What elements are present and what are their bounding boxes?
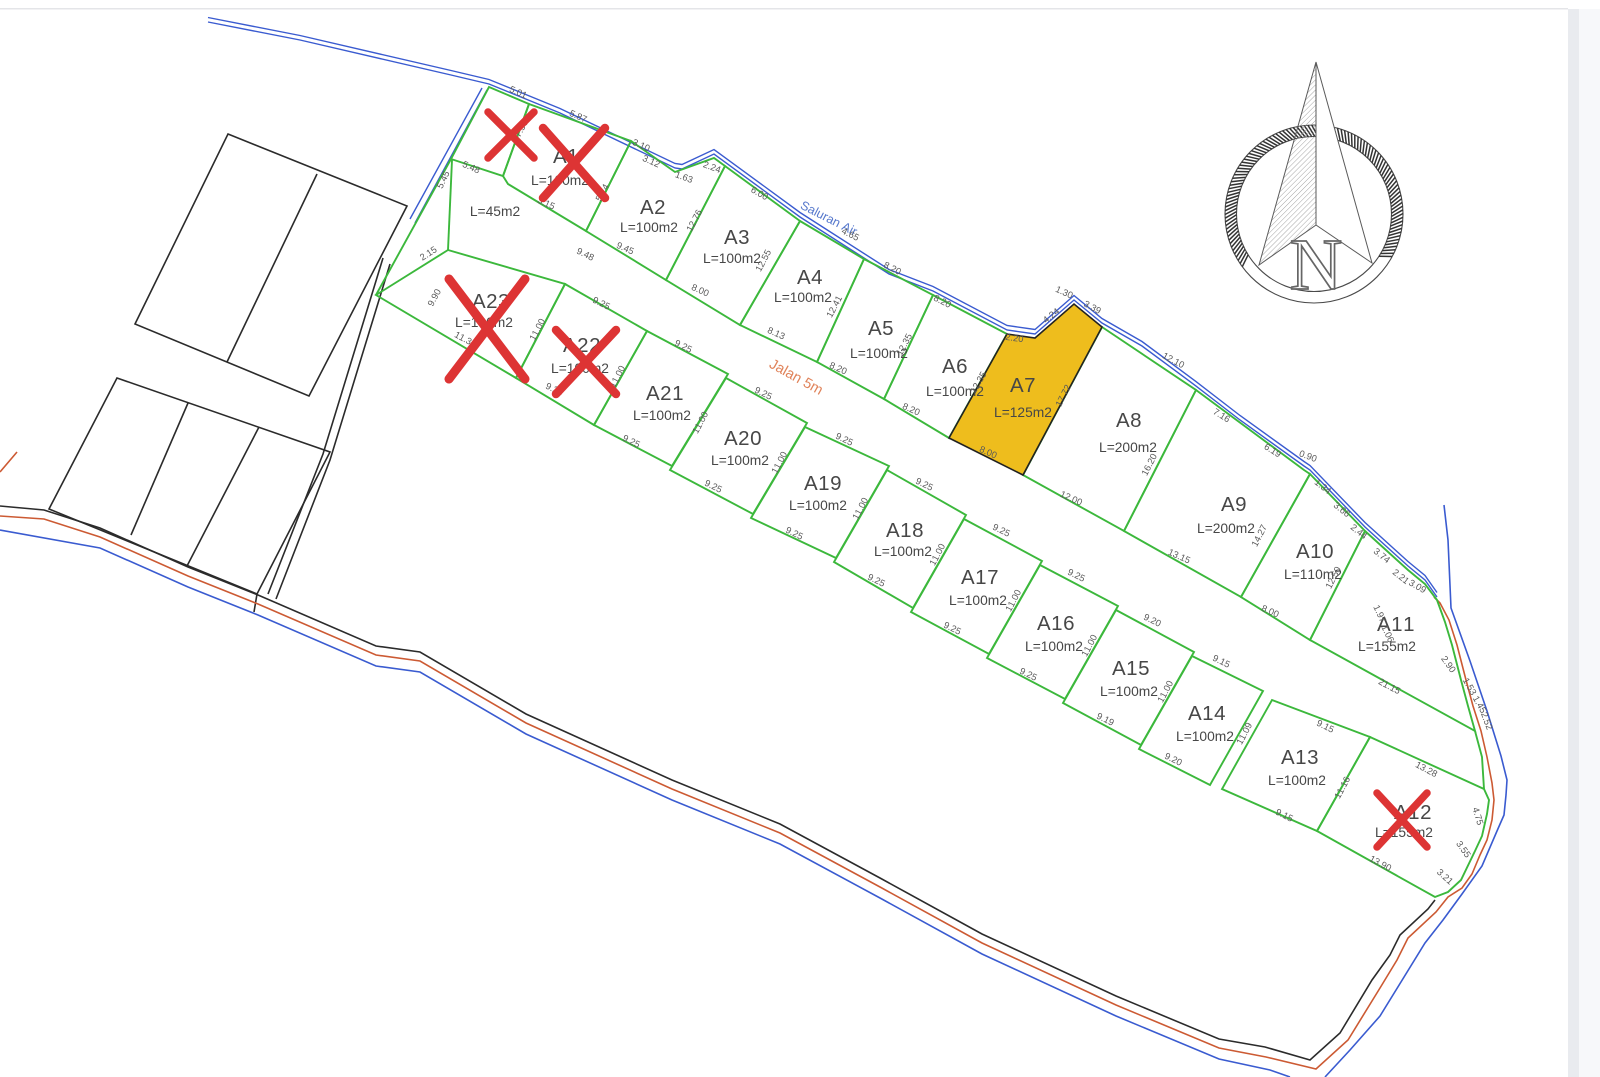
svg-text:A13: A13	[1281, 746, 1319, 769]
svg-text:A8: A8	[1116, 409, 1142, 432]
svg-text:L=100m2: L=100m2	[633, 408, 691, 423]
svg-text:A14: A14	[1188, 702, 1226, 725]
svg-text:L=100m2: L=100m2	[1100, 684, 1158, 699]
svg-text:L=100m2: L=100m2	[1176, 729, 1234, 744]
svg-text:A15: A15	[1112, 657, 1150, 680]
svg-text:A3: A3	[724, 226, 750, 249]
svg-text:L=100m2: L=100m2	[703, 251, 761, 266]
svg-text:L=100m2: L=100m2	[789, 498, 847, 513]
svg-text:L=200m2: L=200m2	[1197, 521, 1255, 536]
svg-text:L=100m2: L=100m2	[774, 290, 832, 305]
svg-text:L=200m2: L=200m2	[1099, 440, 1157, 455]
svg-text:L=100m2: L=100m2	[711, 453, 769, 468]
svg-text:N: N	[1290, 224, 1343, 305]
svg-text:L=100m2: L=100m2	[949, 593, 1007, 608]
svg-text:A10: A10	[1296, 540, 1334, 563]
svg-text:L=100m2: L=100m2	[620, 220, 678, 235]
svg-text:A9: A9	[1221, 493, 1247, 516]
svg-text:A20: A20	[724, 427, 762, 450]
svg-text:A7: A7	[1010, 374, 1036, 397]
svg-text:L=125m2: L=125m2	[994, 405, 1052, 420]
svg-text:L=100m2: L=100m2	[874, 544, 932, 559]
svg-text:A19: A19	[804, 472, 842, 495]
svg-text:L=45m2: L=45m2	[470, 204, 520, 219]
svg-text:A21: A21	[646, 382, 684, 405]
svg-text:A17: A17	[961, 566, 999, 589]
svg-text:L=100m2: L=100m2	[1025, 639, 1083, 654]
svg-text:A6: A6	[942, 355, 968, 378]
svg-text:A4: A4	[797, 266, 823, 289]
svg-text:A16: A16	[1037, 612, 1075, 635]
svg-text:L=100m2: L=100m2	[1268, 773, 1326, 788]
svg-text:A5: A5	[868, 317, 894, 340]
svg-text:A18: A18	[886, 519, 924, 542]
svg-text:A2: A2	[640, 196, 666, 219]
